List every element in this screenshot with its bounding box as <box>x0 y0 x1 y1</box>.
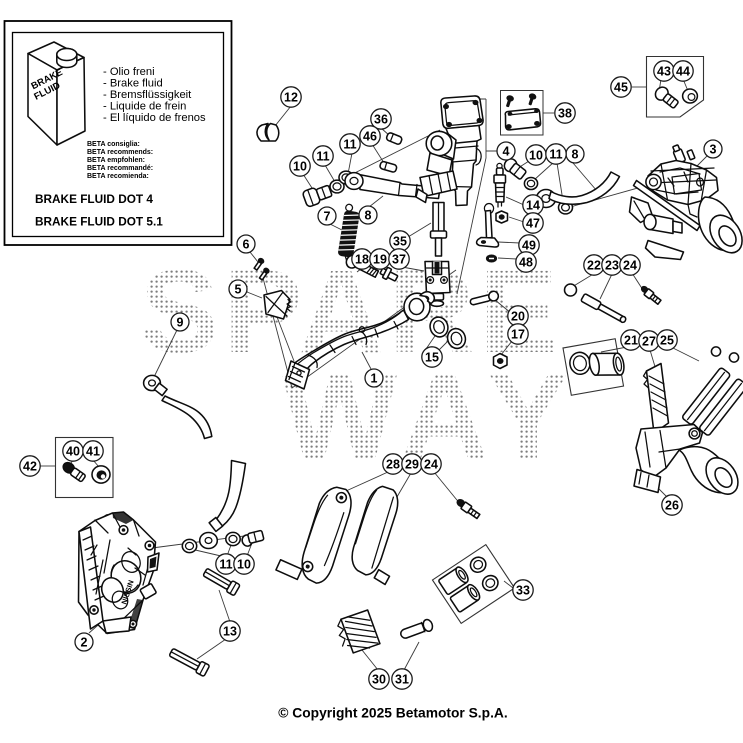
svg-text:15: 15 <box>425 351 439 365</box>
svg-text:2: 2 <box>81 636 88 650</box>
svg-text:5: 5 <box>235 283 242 297</box>
svg-text:12: 12 <box>284 91 298 105</box>
svg-text:40: 40 <box>66 445 80 459</box>
svg-text:28: 28 <box>386 458 400 472</box>
svg-text:- Bremsflüssigkeit: - Bremsflüssigkeit <box>103 89 192 101</box>
svg-text:33: 33 <box>516 584 530 598</box>
svg-text:27: 27 <box>642 335 656 349</box>
svg-text:18: 18 <box>355 253 369 267</box>
svg-text:11: 11 <box>219 558 232 572</box>
svg-text:6: 6 <box>243 238 250 252</box>
svg-text:46: 46 <box>363 130 377 144</box>
svg-text:BETA recomienda:: BETA recomienda: <box>87 173 149 180</box>
svg-text:36: 36 <box>374 113 388 127</box>
svg-text:30: 30 <box>372 673 386 687</box>
svg-text:14: 14 <box>526 199 540 213</box>
svg-text:48: 48 <box>519 256 533 270</box>
svg-text:37: 37 <box>392 253 406 267</box>
svg-text:44: 44 <box>676 65 690 79</box>
svg-text:8: 8 <box>365 209 372 223</box>
svg-text:- Olio freni: - Olio freni <box>103 66 155 78</box>
svg-text:- El líquido de frenos: - El líquido de frenos <box>103 112 206 124</box>
svg-text:22: 22 <box>587 259 601 273</box>
svg-text:42: 42 <box>23 460 37 474</box>
svg-text:8: 8 <box>572 148 579 162</box>
svg-text:41: 41 <box>86 445 100 459</box>
svg-text:19: 19 <box>373 253 387 267</box>
svg-text:24: 24 <box>623 259 637 273</box>
svg-text:23: 23 <box>605 259 619 273</box>
svg-text:BETA recommandé:: BETA recommandé: <box>87 165 153 172</box>
svg-text:20: 20 <box>511 310 525 324</box>
svg-text:26: 26 <box>665 499 679 513</box>
svg-text:10: 10 <box>293 160 307 174</box>
svg-text:© Copyright 2025 Betamotor S.p: © Copyright 2025 Betamotor S.p.A. <box>278 706 507 721</box>
svg-text:49: 49 <box>522 239 536 253</box>
svg-text:4: 4 <box>503 145 510 159</box>
svg-text:11: 11 <box>316 150 329 164</box>
svg-text:17: 17 <box>511 328 525 342</box>
svg-text:10: 10 <box>529 149 543 163</box>
svg-text:3: 3 <box>710 143 717 157</box>
svg-text:35: 35 <box>393 235 407 249</box>
svg-text:45: 45 <box>614 81 628 95</box>
svg-text:7: 7 <box>324 210 331 224</box>
svg-text:25: 25 <box>660 334 674 348</box>
svg-text:BRAKE FLUID DOT 4: BRAKE FLUID DOT 4 <box>35 192 153 206</box>
svg-text:38: 38 <box>558 107 572 121</box>
svg-text:BRAKE FLUID DOT 5.1: BRAKE FLUID DOT 5.1 <box>35 215 163 229</box>
svg-text:11: 11 <box>549 148 562 162</box>
svg-text:BETA consiglia:: BETA consiglia: <box>87 141 140 148</box>
svg-text:29: 29 <box>405 458 419 472</box>
svg-text:47: 47 <box>526 217 540 231</box>
svg-text:1: 1 <box>371 372 378 386</box>
svg-text:13: 13 <box>223 625 237 639</box>
svg-text:24: 24 <box>424 458 438 472</box>
svg-text:- Brake fluid: - Brake fluid <box>103 78 163 90</box>
svg-text:- Liquide de frein: - Liquide de frein <box>103 101 186 113</box>
svg-text:21: 21 <box>624 334 638 348</box>
svg-text:BETA recommends:: BETA recommends: <box>87 149 153 156</box>
svg-text:10: 10 <box>237 558 251 572</box>
svg-text:BETA empfohlen:: BETA empfohlen: <box>87 157 145 164</box>
svg-text:43: 43 <box>657 65 671 79</box>
svg-text:11: 11 <box>343 138 356 152</box>
svg-text:9: 9 <box>177 316 184 330</box>
svg-text:31: 31 <box>395 673 409 687</box>
